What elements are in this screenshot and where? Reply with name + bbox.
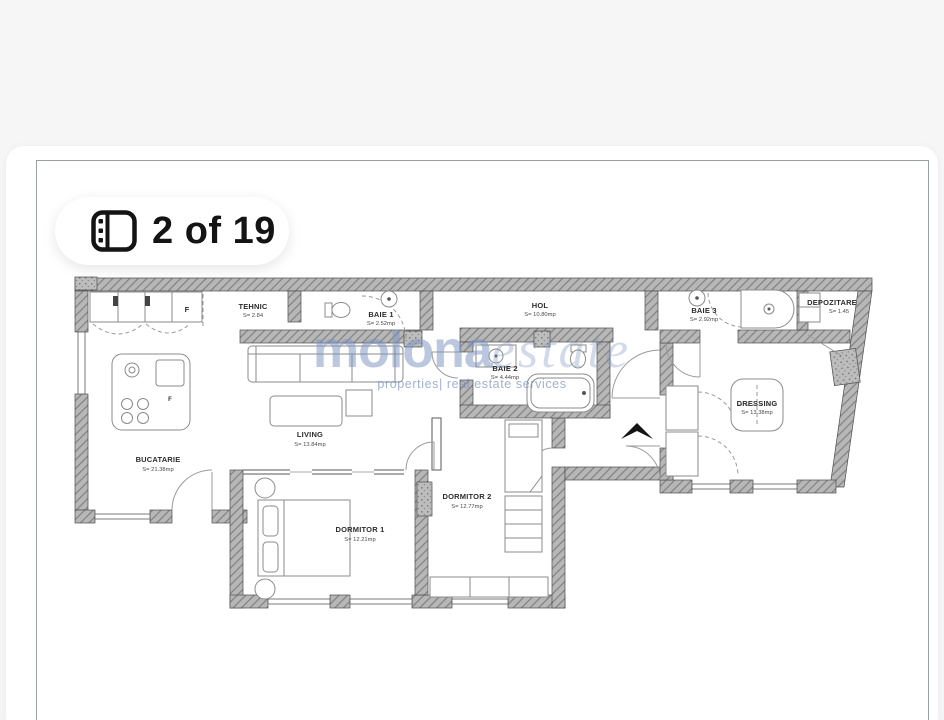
gallery-icon xyxy=(91,210,137,252)
photo-count-label: 2 of 19 xyxy=(152,210,276,253)
page-background: { "gallery": { "badge": { "label": "2 of… xyxy=(0,0,944,720)
photo-count-badge: 2 of 19 xyxy=(55,197,289,265)
